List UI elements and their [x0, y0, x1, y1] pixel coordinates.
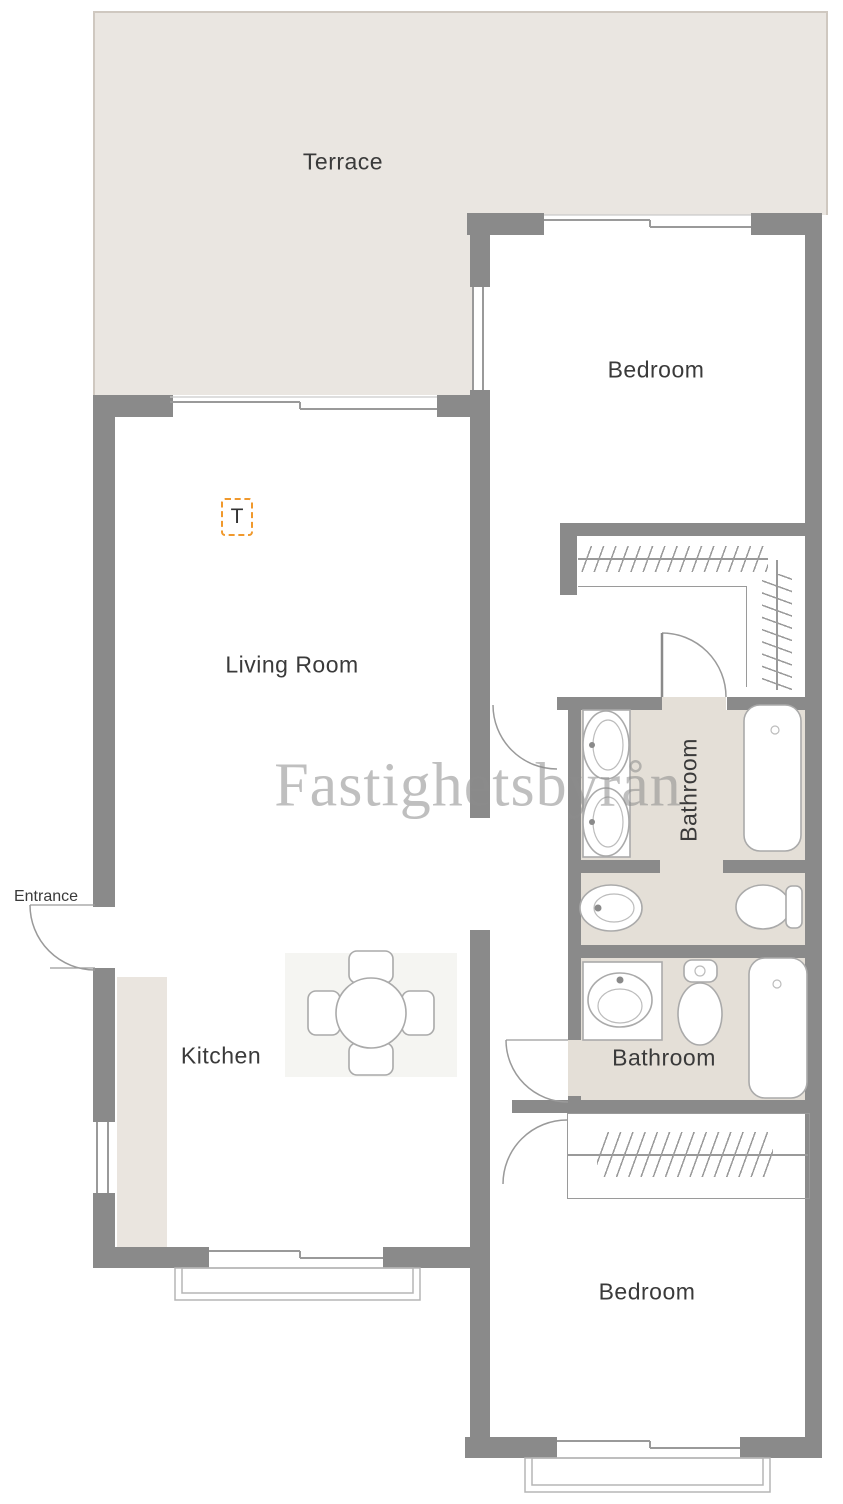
- bathroom-bottom-floor: [581, 958, 805, 1100]
- wall-closet-stub: [560, 523, 577, 595]
- wall-bedroom-top-top-left: [467, 213, 544, 235]
- tv-marker-letter: T: [231, 505, 244, 529]
- wall-bath-top-right: [727, 697, 805, 710]
- wc-floor: [581, 873, 805, 945]
- wall-bedroom-bottom-bottom-left: [465, 1437, 557, 1458]
- wall-bath-top-bottom-b: [723, 860, 805, 873]
- wall-wc-left: [568, 873, 581, 945]
- living-room-label: Living Room: [225, 652, 358, 679]
- terrace-label: Terrace: [303, 149, 383, 176]
- tv-marker: T: [221, 498, 253, 536]
- wc-door-floor: [660, 860, 723, 873]
- wall-left-mid: [93, 968, 115, 1122]
- bedroom-top-label: Bedroom: [608, 357, 705, 384]
- wall-left-upper: [93, 395, 115, 907]
- wall-bath-top-bottom-a: [568, 860, 660, 873]
- bedroom-bottom-label: Bedroom: [599, 1279, 696, 1306]
- wall-bath-bottom-bottom: [512, 1100, 805, 1113]
- terrace-floor: [93, 11, 828, 215]
- dining-mat: [285, 953, 457, 1077]
- wall-bedroom-top-bottom: [560, 523, 805, 536]
- wall-bottom-left: [93, 1247, 209, 1268]
- wall-wc-bottom: [568, 945, 805, 958]
- kitchen-label: Kitchen: [181, 1043, 261, 1070]
- wardrobe-rail-top: [578, 558, 768, 560]
- bathroom-bottom-label: Bathroom: [612, 1045, 716, 1072]
- entrance-label: Entrance: [14, 888, 78, 906]
- bedroom-bottom-closet-rail: [567, 1154, 808, 1156]
- walkin-closet-outline: [578, 586, 747, 687]
- wall-bath-bottom-left-upper: [568, 958, 581, 1040]
- terrace-floor-lower: [93, 213, 472, 395]
- wardrobe-rail-right: [776, 560, 778, 690]
- wall-bedroom-bottom-bottom-right: [740, 1437, 822, 1458]
- bathroom-bottom-door-floor: [568, 1040, 581, 1099]
- floor-plan: Terrace Bedroom Living Room Kitchen Bath…: [0, 0, 843, 1504]
- watermark: Fastighetsbyrån: [274, 751, 682, 822]
- wall-living-right-lower: [470, 930, 490, 1458]
- bathroom-top-door-floor: [662, 697, 726, 710]
- kitchen-counter: [117, 977, 167, 1247]
- wall-outer-right: [805, 213, 822, 1458]
